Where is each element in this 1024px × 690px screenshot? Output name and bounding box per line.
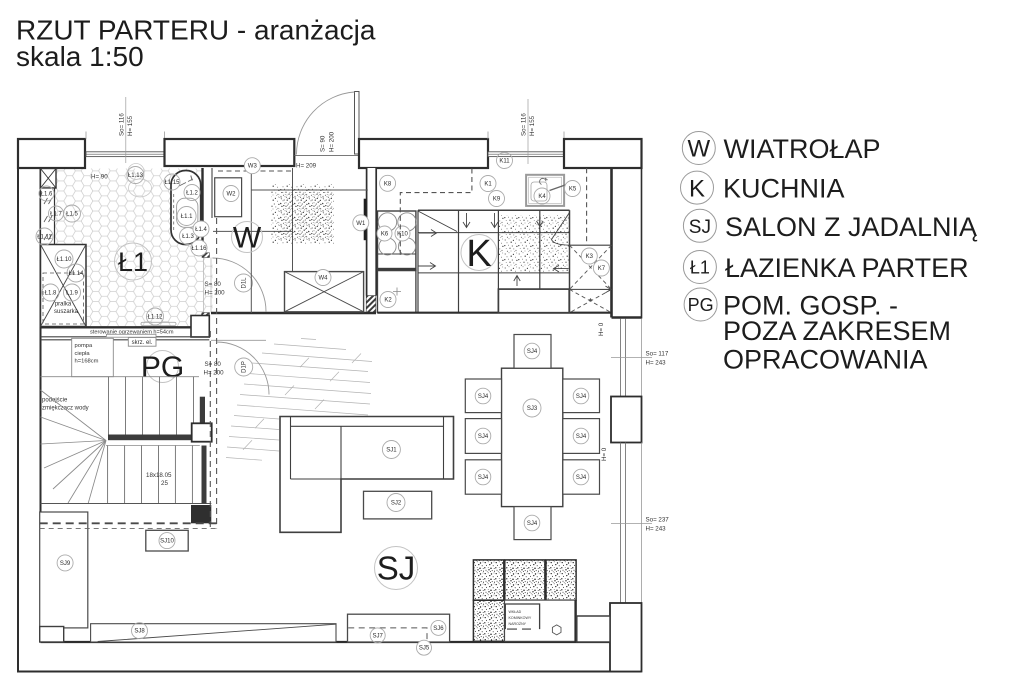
svg-text:SJ4: SJ4 bbox=[527, 521, 538, 527]
svg-text:K8: K8 bbox=[384, 181, 392, 187]
svg-text:SJ4: SJ4 bbox=[478, 394, 489, 400]
svg-text:H= 0: H= 0 bbox=[601, 447, 608, 461]
svg-text:Ł1.8: Ł1.8 bbox=[45, 291, 57, 297]
svg-text:H= 90: H= 90 bbox=[91, 174, 108, 181]
svg-text:So= 116: So= 116 bbox=[521, 113, 528, 136]
svg-text:SJ5: SJ5 bbox=[419, 646, 430, 652]
svg-text:SALON Z JADALNIĄ: SALON Z JADALNIĄ bbox=[725, 212, 978, 242]
svg-text:skala 1:50: skala 1:50 bbox=[16, 41, 144, 72]
svg-text:Ł1: Ł1 bbox=[118, 247, 148, 277]
svg-text:SJ7: SJ7 bbox=[373, 633, 384, 639]
svg-text:Ł1.15: Ł1.15 bbox=[164, 180, 180, 186]
svg-text:K5: K5 bbox=[569, 187, 577, 193]
svg-text:H= 200: H= 200 bbox=[329, 131, 336, 152]
svg-text:SJ4: SJ4 bbox=[576, 475, 587, 481]
svg-text:Ł1.3: Ł1.3 bbox=[182, 234, 194, 240]
svg-text:W2: W2 bbox=[227, 192, 237, 198]
svg-text:KOMINKOWY: KOMINKOWY bbox=[509, 616, 532, 620]
svg-text:Ł1.2: Ł1.2 bbox=[186, 191, 198, 197]
svg-text:Ł1.7: Ł1.7 bbox=[50, 212, 62, 218]
svg-text:H= 0: H= 0 bbox=[598, 322, 605, 336]
svg-text:K3: K3 bbox=[586, 254, 594, 260]
svg-text:*: * bbox=[589, 297, 593, 307]
svg-text:K: K bbox=[466, 233, 491, 275]
svg-text:WIATROŁAP: WIATROŁAP bbox=[724, 134, 881, 164]
svg-text:SJ4: SJ4 bbox=[576, 434, 587, 440]
svg-text:S= 80: S= 80 bbox=[205, 361, 222, 368]
svg-text:Ł1.6: Ł1.6 bbox=[41, 192, 53, 198]
svg-text:KUCHNIA: KUCHNIA bbox=[723, 174, 845, 204]
svg-text:NAROŻNY: NAROŻNY bbox=[509, 621, 527, 626]
svg-text:K9: K9 bbox=[493, 197, 501, 203]
svg-text:POZA ZAKRESEM: POZA ZAKRESEM bbox=[723, 316, 951, 346]
svg-text:SJ3: SJ3 bbox=[527, 406, 538, 412]
svg-text:H= 243: H= 243 bbox=[646, 526, 667, 533]
svg-text:W: W bbox=[687, 136, 710, 163]
svg-text:Ł1.14: Ł1.14 bbox=[68, 271, 84, 277]
svg-text:H= 243: H= 243 bbox=[646, 360, 667, 367]
svg-text:OPRACOWANIA: OPRACOWANIA bbox=[723, 345, 928, 375]
svg-text:SJ6: SJ6 bbox=[433, 626, 444, 632]
svg-text:ŁAZIENKA PARTER: ŁAZIENKA PARTER bbox=[725, 253, 969, 283]
svg-text:PG: PG bbox=[688, 295, 714, 315]
svg-text:pompa: pompa bbox=[75, 343, 94, 349]
svg-text:podejście: podejście bbox=[42, 398, 68, 404]
svg-text:SJ4: SJ4 bbox=[576, 394, 587, 400]
svg-text:D1L: D1L bbox=[242, 277, 248, 289]
svg-text:18x18.05: 18x18.05 bbox=[146, 472, 172, 479]
svg-text:W3: W3 bbox=[248, 164, 258, 170]
svg-text:SJ4: SJ4 bbox=[478, 434, 489, 440]
svg-text:ciepła: ciepła bbox=[75, 351, 91, 357]
svg-text:Ł1.5: Ł1.5 bbox=[66, 212, 78, 218]
svg-text:H= 155: H= 155 bbox=[127, 115, 134, 136]
svg-text:Ł1.9: Ł1.9 bbox=[66, 291, 78, 297]
svg-text:K6: K6 bbox=[381, 232, 389, 238]
svg-text:H= 200: H= 200 bbox=[205, 290, 226, 297]
svg-text:SJ4: SJ4 bbox=[478, 475, 489, 481]
svg-text:W4: W4 bbox=[319, 276, 329, 282]
svg-text:K1: K1 bbox=[484, 182, 492, 188]
svg-text:H= 200: H= 200 bbox=[204, 370, 225, 377]
svg-text:Ł1.11: Ł1.11 bbox=[37, 235, 52, 241]
svg-text:SJ2: SJ2 bbox=[391, 501, 402, 507]
svg-text:suszarka: suszarka bbox=[54, 309, 79, 315]
svg-text:K: K bbox=[689, 175, 705, 202]
svg-text:zmiękczacz wody: zmiękczacz wody bbox=[42, 406, 89, 412]
svg-text:K11: K11 bbox=[499, 159, 510, 165]
svg-text:PG: PG bbox=[141, 351, 184, 384]
svg-text:skrz. el.: skrz. el. bbox=[132, 340, 153, 346]
svg-text:K2: K2 bbox=[384, 298, 392, 304]
svg-text:D1P: D1P bbox=[242, 361, 248, 373]
svg-text:Ł1.10: Ł1.10 bbox=[56, 257, 72, 263]
svg-text:25: 25 bbox=[161, 480, 168, 487]
svg-text:Ł1.12: Ł1.12 bbox=[147, 315, 163, 321]
svg-text:Ł1.13: Ł1.13 bbox=[128, 173, 144, 179]
svg-text:SJ8: SJ8 bbox=[134, 629, 145, 635]
svg-text:Ł1.1: Ł1.1 bbox=[181, 214, 193, 220]
svg-text:K10: K10 bbox=[397, 232, 408, 238]
svg-text:SJ: SJ bbox=[689, 217, 711, 238]
svg-text:WKŁAD: WKŁAD bbox=[509, 610, 522, 614]
svg-text:So= 237: So= 237 bbox=[646, 517, 670, 524]
svg-text:SJ4: SJ4 bbox=[527, 349, 538, 355]
svg-text:pralka: pralka bbox=[55, 302, 72, 308]
svg-text:So= 116: So= 116 bbox=[119, 113, 126, 136]
svg-text:K7: K7 bbox=[598, 266, 606, 272]
svg-text:S= 90: S= 90 bbox=[320, 135, 327, 152]
svg-text:S= 80: S= 80 bbox=[205, 281, 222, 288]
svg-text:So= 117: So= 117 bbox=[646, 351, 669, 358]
svg-text:Ł1.4: Ł1.4 bbox=[195, 227, 207, 233]
svg-text:h=168cm: h=168cm bbox=[75, 359, 99, 365]
svg-text:SJ: SJ bbox=[377, 550, 416, 587]
svg-text:H= 155: H= 155 bbox=[529, 115, 536, 136]
svg-text:W1: W1 bbox=[356, 221, 366, 227]
svg-text:W: W bbox=[233, 222, 262, 255]
svg-text:K4: K4 bbox=[538, 194, 546, 200]
svg-text:SJ9: SJ9 bbox=[60, 561, 71, 567]
svg-text:H= 209: H= 209 bbox=[296, 163, 317, 170]
svg-text:SJ1: SJ1 bbox=[386, 448, 397, 454]
svg-text:Ł1.16: Ł1.16 bbox=[191, 246, 207, 252]
svg-text:Ł1: Ł1 bbox=[690, 258, 710, 278]
svg-text:SJ10: SJ10 bbox=[160, 539, 174, 545]
